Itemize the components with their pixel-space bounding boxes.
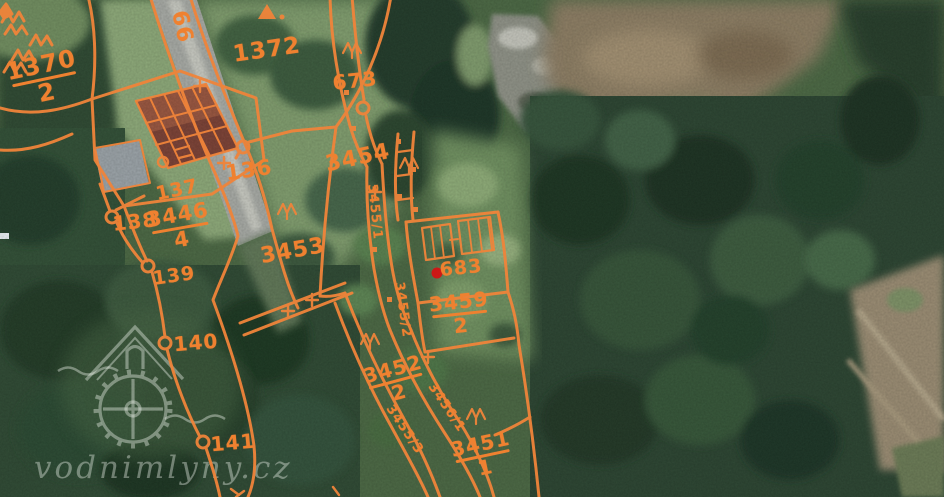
water-mill-location-marker[interactable] [432, 268, 443, 279]
map-viewport[interactable]: vodnimlyny.cz [0, 0, 944, 497]
